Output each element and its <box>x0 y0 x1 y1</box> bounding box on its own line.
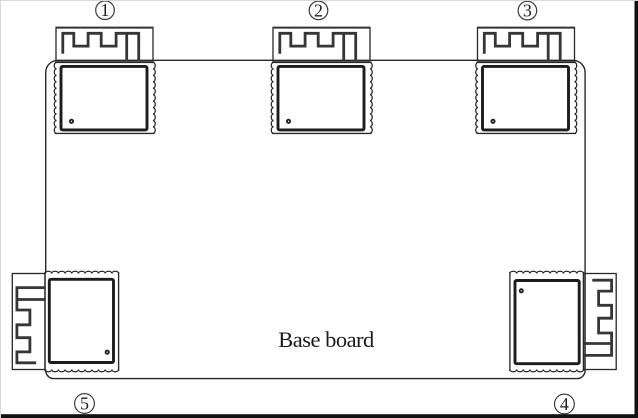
svg-text:Base board: Base board <box>278 327 374 352</box>
svg-text:4: 4 <box>560 394 569 414</box>
svg-text:1: 1 <box>101 0 110 20</box>
svg-text:5: 5 <box>80 394 89 414</box>
svg-text:3: 3 <box>523 1 532 21</box>
svg-text:2: 2 <box>314 0 323 20</box>
